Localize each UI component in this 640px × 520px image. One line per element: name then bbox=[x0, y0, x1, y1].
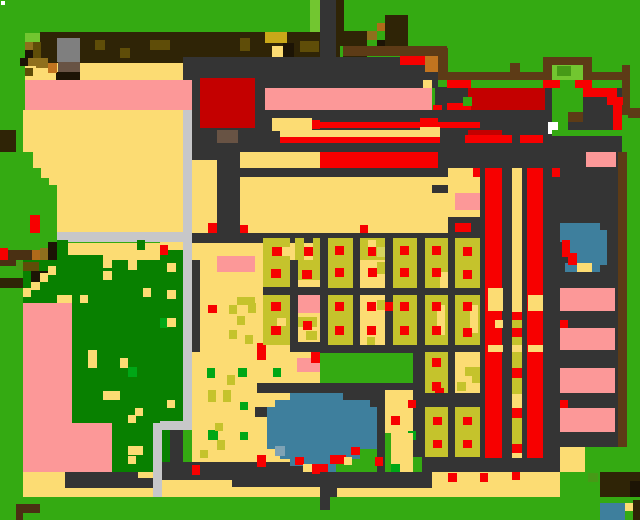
map-rect-grassLight bbox=[310, 0, 320, 32]
map-rect-oliveLt bbox=[28, 58, 36, 66]
map-rect-tan bbox=[40, 273, 48, 282]
map-rect-oliveLt bbox=[25, 42, 33, 50]
map-rect-tan bbox=[160, 130, 183, 243]
map-rect-red bbox=[432, 246, 441, 255]
map-rect-cellOlive bbox=[512, 320, 522, 328]
map-rect-red bbox=[375, 457, 383, 466]
map-rect-red bbox=[543, 80, 560, 88]
map-rect-cellOlive bbox=[237, 316, 245, 325]
map-rect-red bbox=[575, 80, 592, 88]
map-rect-red bbox=[192, 465, 200, 475]
map-rect-grass bbox=[49, 185, 57, 232]
map-rect-olive bbox=[240, 38, 250, 51]
map-rect-cellOlive bbox=[229, 305, 237, 314]
map-rect-tan bbox=[320, 488, 480, 497]
map-rect-cellOlive bbox=[245, 335, 253, 344]
map-rect-olive bbox=[25, 68, 33, 76]
map-rect-red bbox=[391, 416, 400, 425]
map-rect-dkband bbox=[385, 15, 408, 46]
map-rect-tan bbox=[480, 472, 560, 497]
map-rect-cellOlive bbox=[215, 423, 223, 431]
map-rect-pink bbox=[265, 88, 432, 110]
map-rect-tan bbox=[495, 320, 503, 328]
map-rect-brown2 bbox=[8, 250, 33, 260]
map-rect-cellOlive bbox=[512, 337, 522, 345]
map-rect-pink bbox=[560, 408, 615, 432]
map-rect-tan bbox=[23, 288, 31, 297]
map-rect-tan bbox=[162, 480, 232, 497]
map-rect-red bbox=[257, 343, 266, 360]
map-rect-red bbox=[271, 269, 281, 278]
map-rect-lightGray bbox=[183, 242, 192, 422]
map-rect-red bbox=[400, 246, 409, 255]
map-rect-road bbox=[192, 260, 200, 352]
map-rect-red bbox=[257, 455, 266, 467]
map-rect-oliveLt bbox=[367, 31, 377, 40]
map-rect-grass bbox=[41, 178, 49, 232]
map-rect-tan bbox=[512, 345, 522, 352]
map-rect-red bbox=[320, 464, 328, 472]
map-rect-red bbox=[272, 247, 282, 256]
map-rect-pink bbox=[298, 295, 320, 313]
map-rect-green3 bbox=[16, 261, 23, 270]
map-rect-lightGray bbox=[57, 232, 192, 242]
map-rect-olive bbox=[33, 42, 41, 50]
map-rect-brown2 bbox=[0, 260, 16, 266]
map-rect-red bbox=[311, 352, 320, 363]
map-rect-red bbox=[583, 88, 617, 97]
map-rect-black bbox=[48, 242, 57, 260]
map-rect-red bbox=[320, 152, 438, 168]
map-rect-red bbox=[240, 225, 248, 233]
map-rect-red bbox=[335, 326, 344, 335]
map-rect-red bbox=[433, 417, 442, 425]
map-rect-grass bbox=[627, 160, 640, 472]
map-rect-tan bbox=[488, 345, 503, 352]
map-rect-cellOlive bbox=[512, 352, 522, 368]
map-rect-olive bbox=[300, 41, 319, 52]
map-rect-tan bbox=[167, 290, 176, 299]
map-rect-road bbox=[217, 143, 240, 233]
map-rect-cellOlive bbox=[217, 440, 225, 450]
map-rect-red bbox=[463, 270, 472, 279]
map-rect-red bbox=[455, 223, 471, 232]
map-rect-red bbox=[432, 268, 441, 277]
map-rect-tan bbox=[232, 487, 320, 497]
map-rect-tan bbox=[88, 350, 97, 368]
map-rect-pink bbox=[25, 80, 192, 110]
map-rect-darkRed bbox=[200, 78, 255, 128]
map-rect-road bbox=[543, 136, 622, 143]
map-rect-brown bbox=[583, 57, 592, 80]
map-rect-red bbox=[0, 248, 8, 260]
map-rect-cellOliveLt bbox=[377, 247, 385, 257]
map-rect-tan bbox=[344, 457, 352, 465]
map-rect-mustard bbox=[265, 32, 287, 43]
map-rect-red bbox=[613, 105, 622, 130]
map-rect-road bbox=[65, 472, 138, 488]
map-rect-brown bbox=[510, 63, 520, 72]
map-rect-tan bbox=[277, 318, 286, 326]
map-rect-tan bbox=[577, 263, 592, 272]
map-rect-tan bbox=[272, 46, 283, 57]
map-rect-road bbox=[138, 478, 153, 488]
map-rect-tan bbox=[320, 130, 440, 137]
map-rect-road bbox=[568, 122, 592, 130]
map-rect-water bbox=[328, 464, 336, 472]
map-rect-orange bbox=[48, 63, 57, 73]
map-rect-tan bbox=[625, 503, 633, 511]
map-rect-oliveLt bbox=[36, 58, 48, 68]
map-rect-road bbox=[432, 185, 448, 193]
map-rect-red bbox=[368, 247, 376, 256]
map-rect-cellOlive bbox=[457, 382, 466, 391]
map-rect-greenDot bbox=[208, 430, 218, 440]
map-rect-cellOlive bbox=[248, 303, 256, 313]
map-rect-red bbox=[420, 118, 438, 127]
map-rect-road bbox=[170, 430, 183, 462]
map-rect-red bbox=[512, 444, 522, 453]
map-rect-red bbox=[208, 305, 217, 313]
map-rect-tan bbox=[80, 295, 88, 303]
map-rect-red bbox=[304, 247, 313, 256]
map-rect-pink bbox=[560, 328, 615, 350]
map-rect-cellOlive bbox=[512, 418, 522, 444]
map-rect-tan bbox=[240, 152, 320, 168]
map-rect-tan bbox=[103, 271, 112, 280]
map-rect-red bbox=[480, 473, 488, 482]
map-rect-pink bbox=[23, 303, 72, 423]
map-rect-red bbox=[520, 135, 543, 143]
map-rect-lightGray bbox=[153, 423, 162, 497]
map-rect-red bbox=[568, 253, 577, 265]
map-rect-brown2 bbox=[16, 504, 23, 520]
map-rect-red bbox=[432, 358, 441, 367]
map-rect-grassLight bbox=[25, 33, 40, 42]
map-rect-red bbox=[303, 321, 312, 330]
map-rect-cellOlive bbox=[313, 238, 320, 260]
map-rect-garden bbox=[57, 240, 68, 260]
map-rect-red bbox=[271, 302, 281, 311]
map-rect-cellOlive bbox=[455, 407, 480, 457]
map-rect-lightGray bbox=[160, 421, 192, 430]
map-rect-cellOlive bbox=[377, 262, 385, 274]
map-rect-road bbox=[232, 480, 320, 487]
map-rect-cellOlive bbox=[227, 375, 235, 385]
map-rect-olive bbox=[23, 262, 39, 271]
map-rect-tan bbox=[57, 295, 72, 303]
map-rect-layer bbox=[0, 0, 640, 520]
map-rect-brown bbox=[618, 152, 627, 447]
map-rect-black bbox=[630, 481, 640, 497]
map-rect-waterLight bbox=[275, 446, 285, 456]
map-rect-pink bbox=[217, 256, 255, 272]
map-rect-tan bbox=[167, 263, 176, 272]
map-rect-road bbox=[320, 488, 337, 497]
map-rect-tan bbox=[240, 177, 448, 233]
map-rect-red bbox=[320, 122, 480, 128]
map-rect-road bbox=[422, 393, 480, 407]
map-rect-red bbox=[512, 368, 522, 378]
map-rect-tan bbox=[423, 80, 432, 88]
map-rect-red bbox=[367, 302, 376, 311]
map-rect-tan bbox=[143, 288, 151, 297]
map-rect-tan bbox=[528, 295, 543, 311]
map-rect-tan bbox=[488, 288, 503, 311]
map-rect-brown bbox=[568, 112, 583, 122]
map-rect-orange bbox=[425, 56, 438, 72]
map-rect-tan bbox=[128, 415, 136, 423]
map-rect-lightGray bbox=[183, 110, 192, 242]
map-rect-black bbox=[20, 58, 28, 66]
map-rect-red bbox=[367, 326, 376, 335]
map-rect-red bbox=[30, 215, 40, 233]
map-rect-red bbox=[463, 440, 472, 448]
map-rect-olive bbox=[95, 40, 105, 50]
map-rect-red bbox=[447, 80, 471, 88]
map-rect-greenDot bbox=[240, 432, 248, 440]
map-rect-green3 bbox=[557, 66, 571, 76]
map-rect-cellOlive bbox=[306, 331, 317, 340]
map-rect-tan bbox=[528, 345, 543, 352]
map-rect-cellOlive bbox=[377, 300, 385, 310]
map-rect-garden bbox=[168, 250, 183, 260]
map-rect-greenDot bbox=[240, 402, 248, 410]
map-rect-pink bbox=[560, 368, 615, 393]
map-rect-road bbox=[422, 457, 480, 472]
map-rect-green3 bbox=[588, 473, 598, 482]
map-rect-pink bbox=[23, 423, 112, 472]
map-rect-black bbox=[25, 50, 33, 58]
map-rect-black bbox=[56, 72, 80, 80]
map-rect-cellOlive bbox=[425, 407, 448, 457]
map-rect-orange2 bbox=[377, 23, 385, 31]
map-rect-red bbox=[302, 270, 312, 279]
map-rect-red bbox=[512, 328, 522, 337]
map-rect-red bbox=[463, 417, 472, 425]
map-rect-cellOlive bbox=[367, 337, 375, 345]
map-rect-red bbox=[433, 440, 442, 448]
map-rect-brown bbox=[628, 108, 640, 118]
map-rect-red bbox=[312, 464, 320, 474]
map-rect-water bbox=[267, 407, 377, 449]
map-rect-tan bbox=[120, 358, 128, 368]
map-rect-olive bbox=[120, 48, 130, 58]
map-rect-cellOlive bbox=[200, 450, 208, 458]
map-rect-dkband bbox=[633, 500, 640, 520]
map-rect-orange2 bbox=[32, 250, 40, 260]
map-rect-dkband bbox=[0, 278, 23, 288]
map-rect-red bbox=[512, 408, 522, 418]
map-rect-red bbox=[335, 302, 344, 311]
map-rect-red bbox=[351, 447, 360, 455]
map-rect-tan bbox=[282, 247, 292, 256]
map-rect-olive bbox=[150, 40, 170, 50]
map-rect-red bbox=[400, 56, 425, 65]
map-rect-gray bbox=[57, 38, 80, 62]
map-rect-tan bbox=[560, 447, 585, 472]
map-rect-red bbox=[607, 97, 623, 105]
map-rect-tan bbox=[167, 400, 175, 408]
map-rect-grass bbox=[463, 97, 472, 106]
map-rect-tan bbox=[128, 456, 136, 464]
map-rect-greenDot bbox=[273, 368, 281, 377]
map-rect-red bbox=[312, 120, 320, 129]
map-rect-red bbox=[465, 135, 512, 143]
map-rect-red bbox=[335, 246, 344, 255]
map-rect-tan bbox=[440, 272, 448, 288]
map-rect-road bbox=[255, 407, 267, 417]
map-rect-water bbox=[600, 503, 625, 520]
map-rect-red bbox=[360, 225, 368, 233]
map-rect-cellOlive bbox=[229, 330, 237, 339]
map-rect-red bbox=[512, 312, 522, 320]
map-rect-red bbox=[435, 388, 444, 393]
map-rect-red bbox=[432, 326, 441, 335]
map-rect-greenDot bbox=[128, 367, 137, 377]
map-rect-cellOlive bbox=[512, 378, 522, 394]
map-rect-road bbox=[320, 497, 330, 510]
map-rect-tan bbox=[48, 266, 56, 275]
map-rect-grass bbox=[585, 447, 640, 472]
map-rect-red bbox=[448, 473, 457, 482]
map-rect-red bbox=[408, 400, 416, 408]
map-rect-red bbox=[400, 326, 409, 335]
map-rect-red bbox=[368, 268, 377, 277]
map-rect-red bbox=[463, 302, 472, 311]
map-rect-red bbox=[400, 302, 409, 311]
map-rect-pink bbox=[586, 152, 616, 167]
map-rect-red bbox=[432, 302, 441, 311]
map-rect-cellOlive bbox=[208, 390, 216, 402]
map-rect-red bbox=[560, 320, 568, 328]
map-rect-tan bbox=[31, 282, 40, 290]
map-rect-red bbox=[463, 328, 472, 337]
map-rect-tan bbox=[103, 391, 120, 400]
map-rect-olive bbox=[33, 50, 41, 58]
map-rect-tan bbox=[303, 464, 312, 472]
map-rect-red bbox=[160, 245, 168, 255]
pixel-map bbox=[0, 0, 640, 520]
map-rect-road bbox=[263, 287, 320, 295]
map-rect-red bbox=[271, 326, 281, 335]
map-rect-tan bbox=[167, 318, 176, 327]
map-rect-red bbox=[560, 400, 568, 408]
map-rect-red bbox=[485, 168, 502, 458]
map-rect-red bbox=[463, 247, 472, 256]
map-rect-tan bbox=[385, 390, 413, 433]
map-rect-brown bbox=[447, 72, 543, 80]
map-rect-red bbox=[527, 168, 543, 458]
map-rect-greenDot bbox=[238, 368, 247, 377]
map-rect-road bbox=[290, 295, 298, 352]
map-rect-tan bbox=[135, 408, 143, 416]
map-rect-road bbox=[320, 472, 432, 488]
map-rect-grayBrown bbox=[217, 130, 238, 143]
map-rect-tan bbox=[128, 446, 143, 455]
map-rect-pink bbox=[455, 193, 480, 210]
map-rect-tan bbox=[103, 260, 112, 268]
map-rect-tan bbox=[280, 130, 320, 137]
map-rect-dkband bbox=[0, 130, 16, 152]
map-rect-red bbox=[512, 472, 520, 480]
map-rect-pink bbox=[560, 288, 615, 311]
map-rect-tan bbox=[128, 260, 137, 270]
map-rect-red bbox=[385, 302, 393, 311]
map-rect-brown bbox=[343, 46, 447, 56]
map-rect-brown bbox=[543, 57, 552, 80]
map-rect-red bbox=[552, 168, 560, 177]
map-rect-oliveLt bbox=[40, 248, 48, 260]
map-rect-cellOlive bbox=[295, 238, 304, 260]
map-rect-red bbox=[335, 268, 344, 277]
map-rect-cellOlive bbox=[223, 390, 231, 402]
map-rect-road bbox=[240, 168, 448, 177]
map-rect-cellOlive bbox=[472, 375, 480, 383]
map-rect-red bbox=[400, 268, 409, 277]
map-rect-garden bbox=[137, 240, 145, 250]
map-rect-red bbox=[208, 223, 217, 233]
map-rect-white bbox=[1, 1, 5, 5]
map-rect-greenDot bbox=[207, 368, 215, 378]
map-rect-grayBrown bbox=[58, 62, 80, 72]
